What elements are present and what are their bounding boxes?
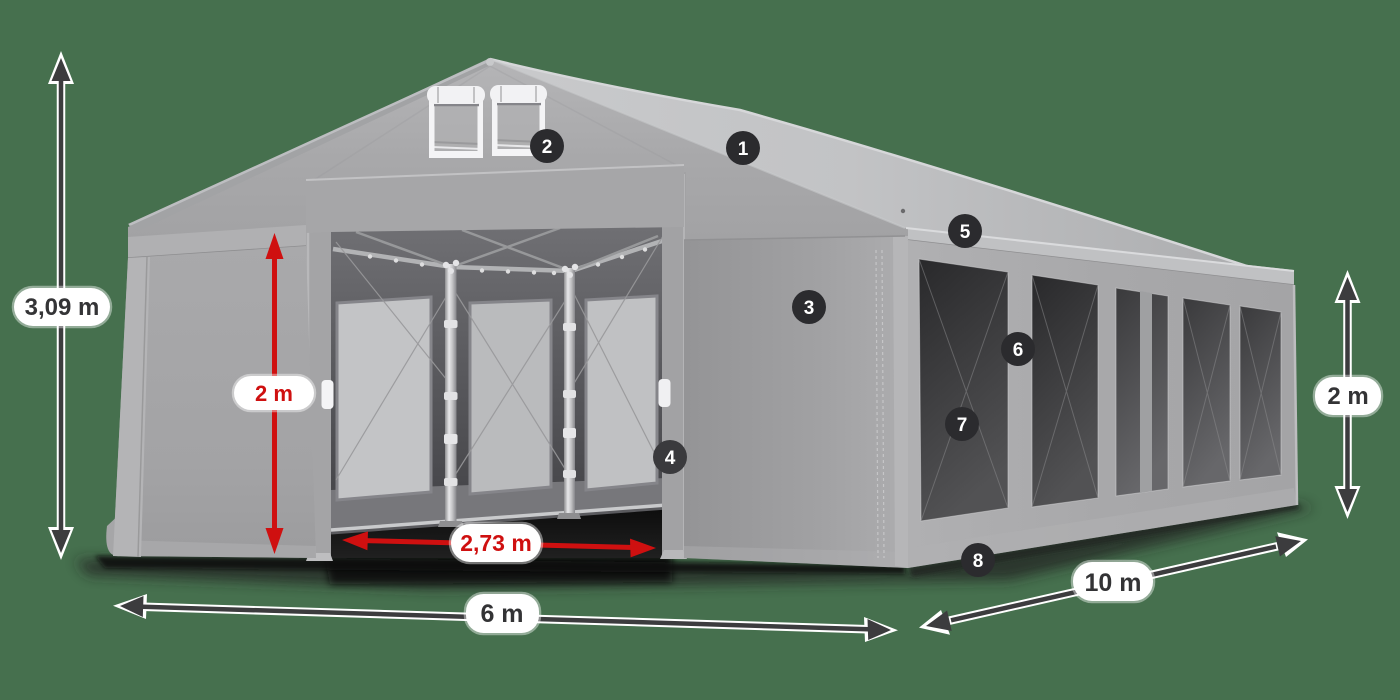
svg-text:10 m: 10 m: [1085, 569, 1142, 597]
svg-text:5: 5: [960, 222, 971, 243]
svg-text:2,73 m: 2,73 m: [460, 530, 532, 556]
svg-text:7: 7: [957, 415, 968, 436]
svg-text:3,09 m: 3,09 m: [25, 294, 100, 321]
svg-text:3: 3: [804, 298, 815, 319]
svg-text:1: 1: [738, 139, 749, 160]
svg-text:2: 2: [542, 137, 553, 158]
svg-text:4: 4: [665, 448, 676, 469]
svg-text:6: 6: [1013, 340, 1024, 361]
svg-text:8: 8: [973, 551, 984, 572]
svg-text:6 m: 6 m: [480, 600, 523, 628]
svg-text:2 m: 2 m: [255, 381, 293, 406]
svg-text:2 m: 2 m: [1327, 383, 1368, 410]
